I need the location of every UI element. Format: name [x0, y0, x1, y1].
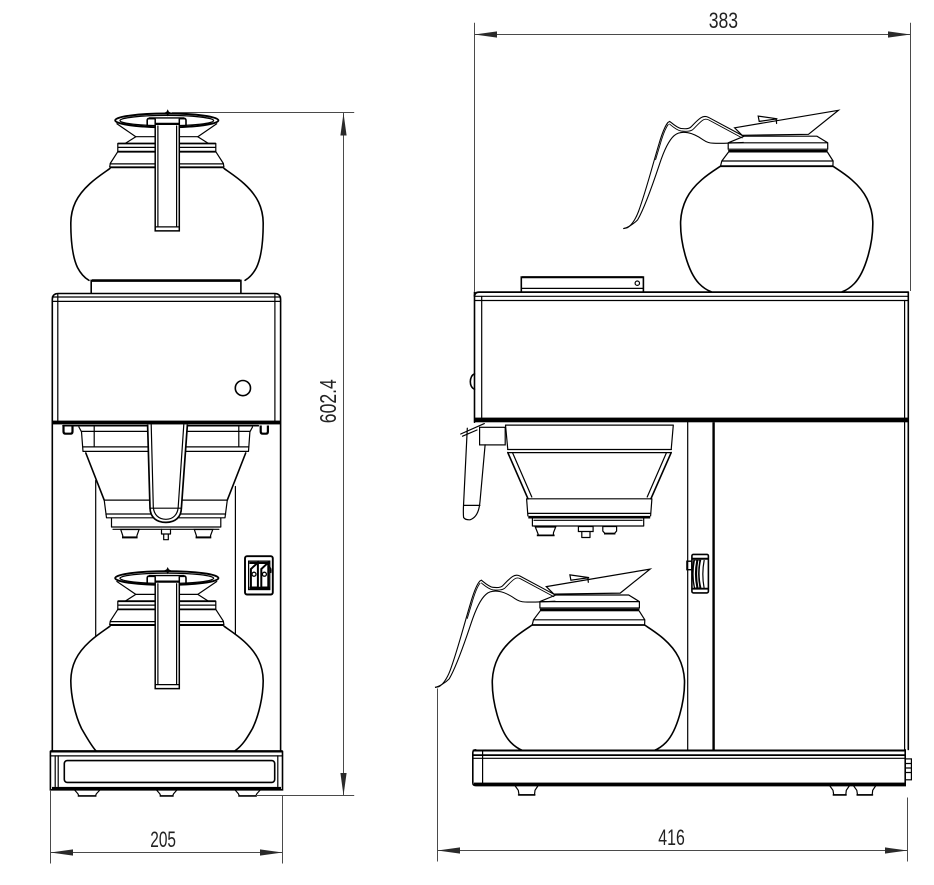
svg-text:602.4: 602.4 — [315, 379, 341, 423]
svg-text:205: 205 — [150, 827, 176, 852]
svg-text:383: 383 — [709, 8, 738, 33]
svg-text:416: 416 — [658, 825, 685, 850]
